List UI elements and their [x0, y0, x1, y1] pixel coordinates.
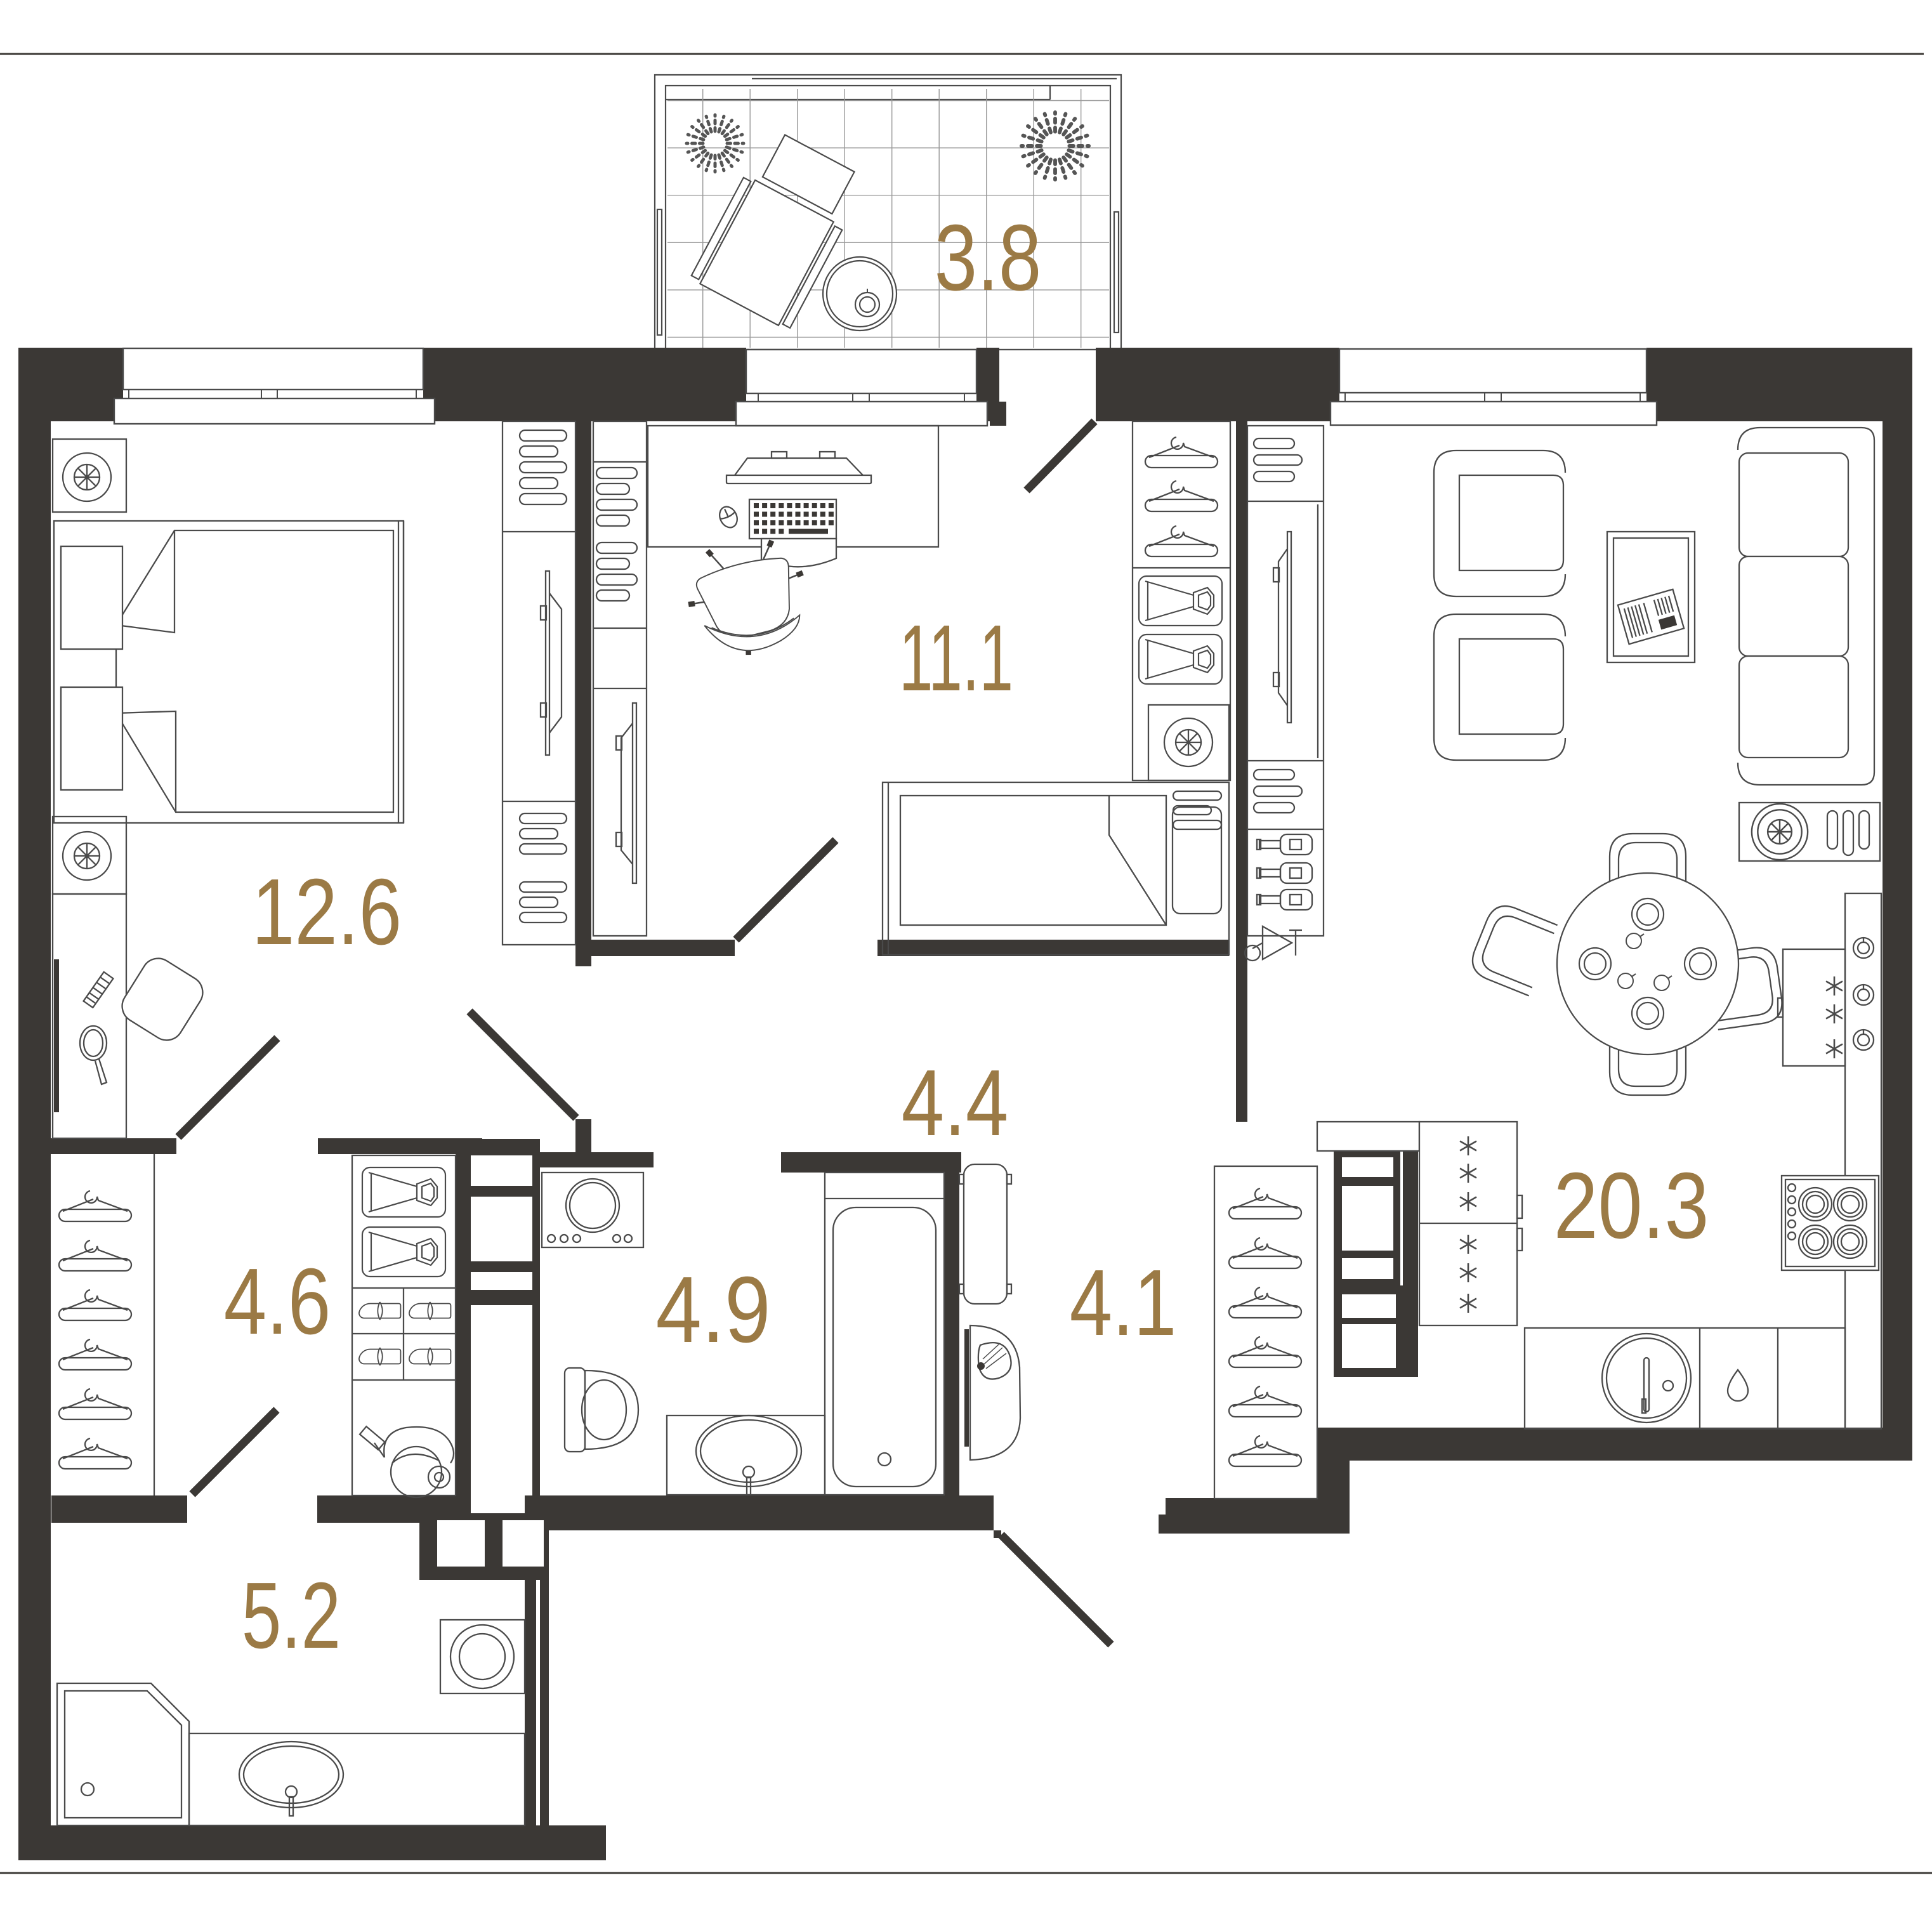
svg-text:5.2: 5.2: [242, 1563, 341, 1668]
svg-text:12.6: 12.6: [252, 858, 402, 964]
svg-text:4.9: 4.9: [655, 1257, 770, 1362]
svg-text:4.6: 4.6: [224, 1248, 331, 1353]
svg-text:20.3: 20.3: [1554, 1153, 1709, 1258]
svg-text:4.4: 4.4: [902, 1049, 1009, 1155]
svg-text:3.8: 3.8: [935, 204, 1042, 310]
svg-text:4.1: 4.1: [1070, 1249, 1177, 1355]
svg-text:11.1: 11.1: [899, 606, 1013, 711]
